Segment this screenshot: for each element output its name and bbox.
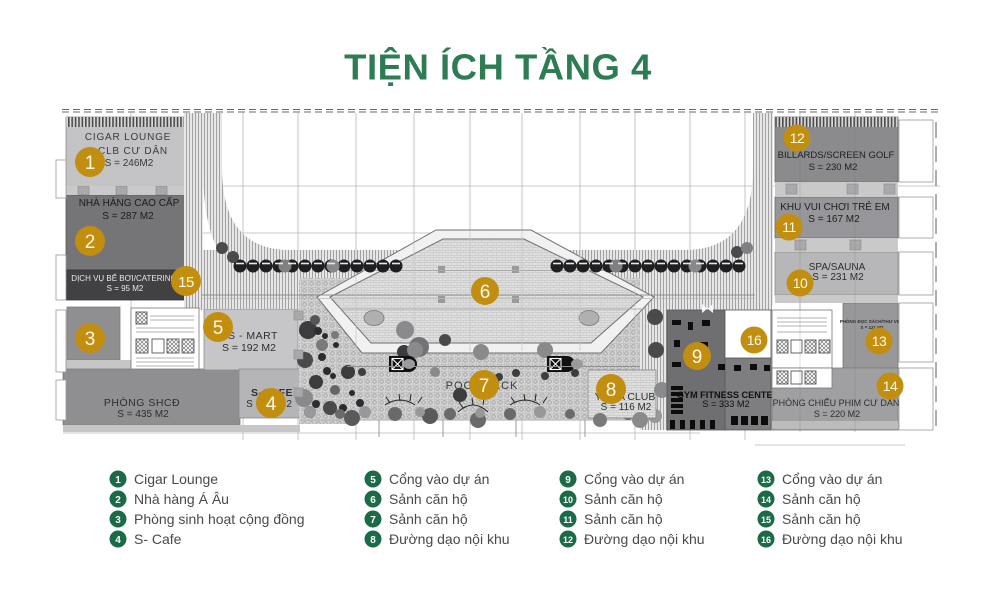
svg-text:15: 15 xyxy=(178,274,194,291)
svg-text:KHU VUI CHƠI TRẺ EM: KHU VUI CHƠI TRẺ EM xyxy=(780,200,890,213)
svg-text:6: 6 xyxy=(370,495,376,506)
svg-text:13: 13 xyxy=(872,333,887,349)
svg-text:4: 4 xyxy=(115,535,121,546)
svg-text:9: 9 xyxy=(565,475,571,486)
svg-text:PHÒNG SHCĐ: PHÒNG SHCĐ xyxy=(104,396,180,409)
svg-text:CIGAR LOUNGE: CIGAR LOUNGE xyxy=(85,132,171,143)
svg-text:10: 10 xyxy=(793,275,808,291)
svg-text:16: 16 xyxy=(747,332,762,348)
svg-text:Sảnh căn hộ: Sảnh căn hộ xyxy=(389,491,468,507)
svg-text:BILLARDS/SCREEN GOLF: BILLARDS/SCREEN GOLF xyxy=(778,150,895,161)
svg-text:S = 246M2: S = 246M2 xyxy=(105,158,154,169)
svg-text:S = 287 M2: S = 287 M2 xyxy=(102,211,154,222)
svg-text:Sảnh căn hộ: Sảnh căn hộ xyxy=(782,511,861,527)
svg-text:7: 7 xyxy=(370,515,376,526)
svg-text:11: 11 xyxy=(563,515,573,525)
svg-text:7: 7 xyxy=(479,376,490,397)
svg-text:S = 333 M2: S = 333 M2 xyxy=(702,399,749,409)
svg-text:Đường dạo nội khu: Đường dạo nội khu xyxy=(782,531,903,547)
svg-text:S- Cafe: S- Cafe xyxy=(134,531,182,547)
svg-text:5: 5 xyxy=(370,475,376,486)
svg-text:S = 220 M2: S = 220 M2 xyxy=(814,409,860,419)
svg-text:Cổng vào dự án: Cổng vào dự án xyxy=(782,471,882,487)
svg-text:1: 1 xyxy=(85,153,96,174)
svg-text:Đường dạo nội khu: Đường dạo nội khu xyxy=(584,531,705,547)
svg-text:Cổng vào dự án: Cổng vào dự án xyxy=(389,471,489,487)
svg-text:S = 167 M2: S = 167 M2 xyxy=(808,214,860,225)
svg-text:2: 2 xyxy=(115,495,121,506)
svg-text:4: 4 xyxy=(266,394,277,415)
svg-text:PHÒNG ĐỌC SÁCH/THƯ VIỆN: PHÒNG ĐỌC SÁCH/THƯ VIỆN xyxy=(840,317,905,324)
svg-text:DỊCH VỤ BỂ BƠI/CATERING: DỊCH VỤ BỂ BƠI/CATERING xyxy=(71,274,176,283)
svg-text:12: 12 xyxy=(790,130,805,146)
svg-text:Cổng vào dự án: Cổng vào dự án xyxy=(584,471,684,487)
svg-text:Nhà hàng Á Âu: Nhà hàng Á Âu xyxy=(134,491,229,507)
svg-text:1: 1 xyxy=(115,475,121,486)
svg-text:Đường dạo nội khu: Đường dạo nội khu xyxy=(389,531,510,547)
svg-text:14: 14 xyxy=(883,378,898,394)
svg-text:14: 14 xyxy=(761,495,771,505)
svg-text:3: 3 xyxy=(85,329,96,350)
svg-text:2: 2 xyxy=(85,232,96,253)
svg-text:6: 6 xyxy=(480,282,491,303)
svg-text:13: 13 xyxy=(761,475,771,485)
svg-text:3: 3 xyxy=(115,515,121,526)
svg-text:TIỆN ÍCH TẦNG 4: TIỆN ÍCH TẦNG 4 xyxy=(344,46,652,88)
svg-text:Sảnh căn hộ: Sảnh căn hộ xyxy=(389,511,468,527)
svg-text:S = 192 M2: S = 192 M2 xyxy=(222,342,276,354)
svg-text:12: 12 xyxy=(563,535,573,545)
svg-text:S = 231 M2: S = 231 M2 xyxy=(812,272,864,283)
svg-text:8: 8 xyxy=(606,380,617,401)
svg-text:11: 11 xyxy=(782,219,796,235)
svg-text:S - MART: S - MART xyxy=(228,330,278,342)
svg-text:9: 9 xyxy=(692,347,703,368)
svg-text:15: 15 xyxy=(761,515,771,525)
svg-text:S = 95 M2: S = 95 M2 xyxy=(107,284,144,293)
svg-text:5: 5 xyxy=(213,318,224,339)
svg-text:Sảnh căn hộ: Sảnh căn hộ xyxy=(584,491,663,507)
svg-text:Cigar Lounge: Cigar Lounge xyxy=(134,471,218,487)
svg-text:10: 10 xyxy=(563,495,573,505)
svg-text:Sảnh căn hộ: Sảnh căn hộ xyxy=(782,491,861,507)
svg-text:Sảnh căn hộ: Sảnh căn hộ xyxy=(584,511,663,527)
svg-text:Phòng sinh hoạt cộng đồng: Phòng sinh hoạt cộng đồng xyxy=(134,511,304,527)
svg-text:S = 230 M2: S = 230 M2 xyxy=(809,162,858,173)
svg-text:16: 16 xyxy=(761,535,771,545)
svg-text:8: 8 xyxy=(370,535,376,546)
svg-text:NHÀ HÀNG CAO CẤP: NHÀ HÀNG CAO CẤP xyxy=(79,196,180,209)
svg-text:PHÒNG CHIẾU PHIM CƯ DÂN: PHÒNG CHIẾU PHIM CƯ DÂN xyxy=(773,398,900,408)
svg-text:CLB CƯ DÂN: CLB CƯ DÂN xyxy=(98,144,168,157)
svg-text:S = 435 M2: S = 435 M2 xyxy=(117,409,169,420)
